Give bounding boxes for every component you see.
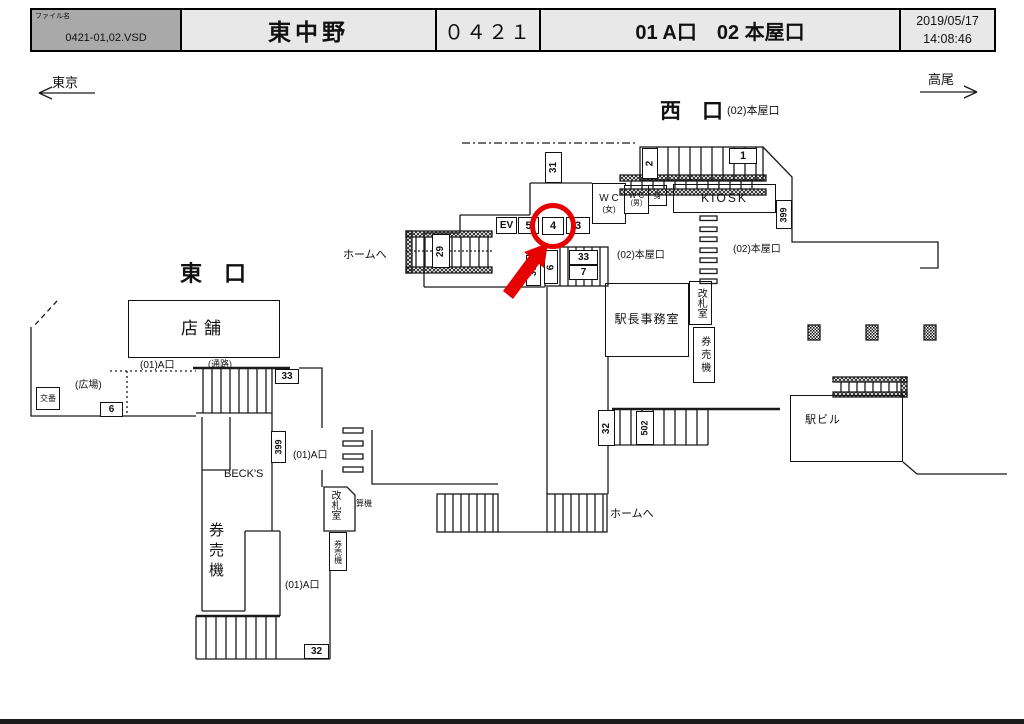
spot-box-7: 7	[569, 265, 598, 280]
elevator-box: EV	[496, 217, 517, 234]
pillars	[808, 325, 936, 340]
stairs-bottom-left-pair	[437, 494, 607, 532]
spot-box-399-east: 399	[271, 431, 286, 463]
spot-box-3: 3	[566, 217, 590, 234]
spot-box-4-highlighted: 4	[542, 217, 564, 235]
spot-box-30: 30	[526, 255, 541, 286]
gate-room-east-label: 改札室	[327, 490, 342, 520]
east-walls	[31, 301, 547, 659]
stairs-502	[620, 409, 708, 445]
arrow-to-tokyo	[39, 87, 95, 99]
spot-box-5: 5	[518, 217, 539, 234]
stairs-bottom-a-exit	[196, 616, 280, 659]
spot-box-32-east: 32	[304, 644, 329, 659]
ticket-machine-west-label: 券売機	[698, 336, 710, 375]
spot-box-6-east: 6	[100, 402, 123, 417]
spot-box-32-west: 32	[598, 410, 615, 446]
spot-box-33-west: 33	[569, 250, 598, 265]
stairs-station-building	[833, 377, 907, 397]
floorplan-drawing	[0, 0, 1024, 724]
spot-box-2: 2	[642, 148, 658, 179]
gate-room-west-label: 改札室	[695, 288, 707, 318]
spot-box-6-west: 6	[544, 250, 558, 284]
spot-box-1: 1	[729, 148, 757, 164]
spot-box-502: 502	[636, 411, 654, 445]
ticket-machine-east-big-label: 券売機	[205, 522, 226, 582]
ticket-machine-east-label: 券売機	[333, 540, 342, 564]
ticket-gates-east	[343, 428, 363, 472]
spot-box-31: 31	[545, 152, 562, 183]
spot-box-33-east: 33	[275, 369, 299, 384]
station-floorplan-page: ファイル名 0421-01,02.VSD 東中野 ０４２１ 01 A口 02 本…	[0, 0, 1024, 724]
arrow-to-takao	[920, 86, 977, 98]
spot-box-29: 29	[432, 234, 450, 268]
ticket-gates-west	[700, 216, 717, 284]
spot-box-399-west: 399	[776, 200, 792, 229]
